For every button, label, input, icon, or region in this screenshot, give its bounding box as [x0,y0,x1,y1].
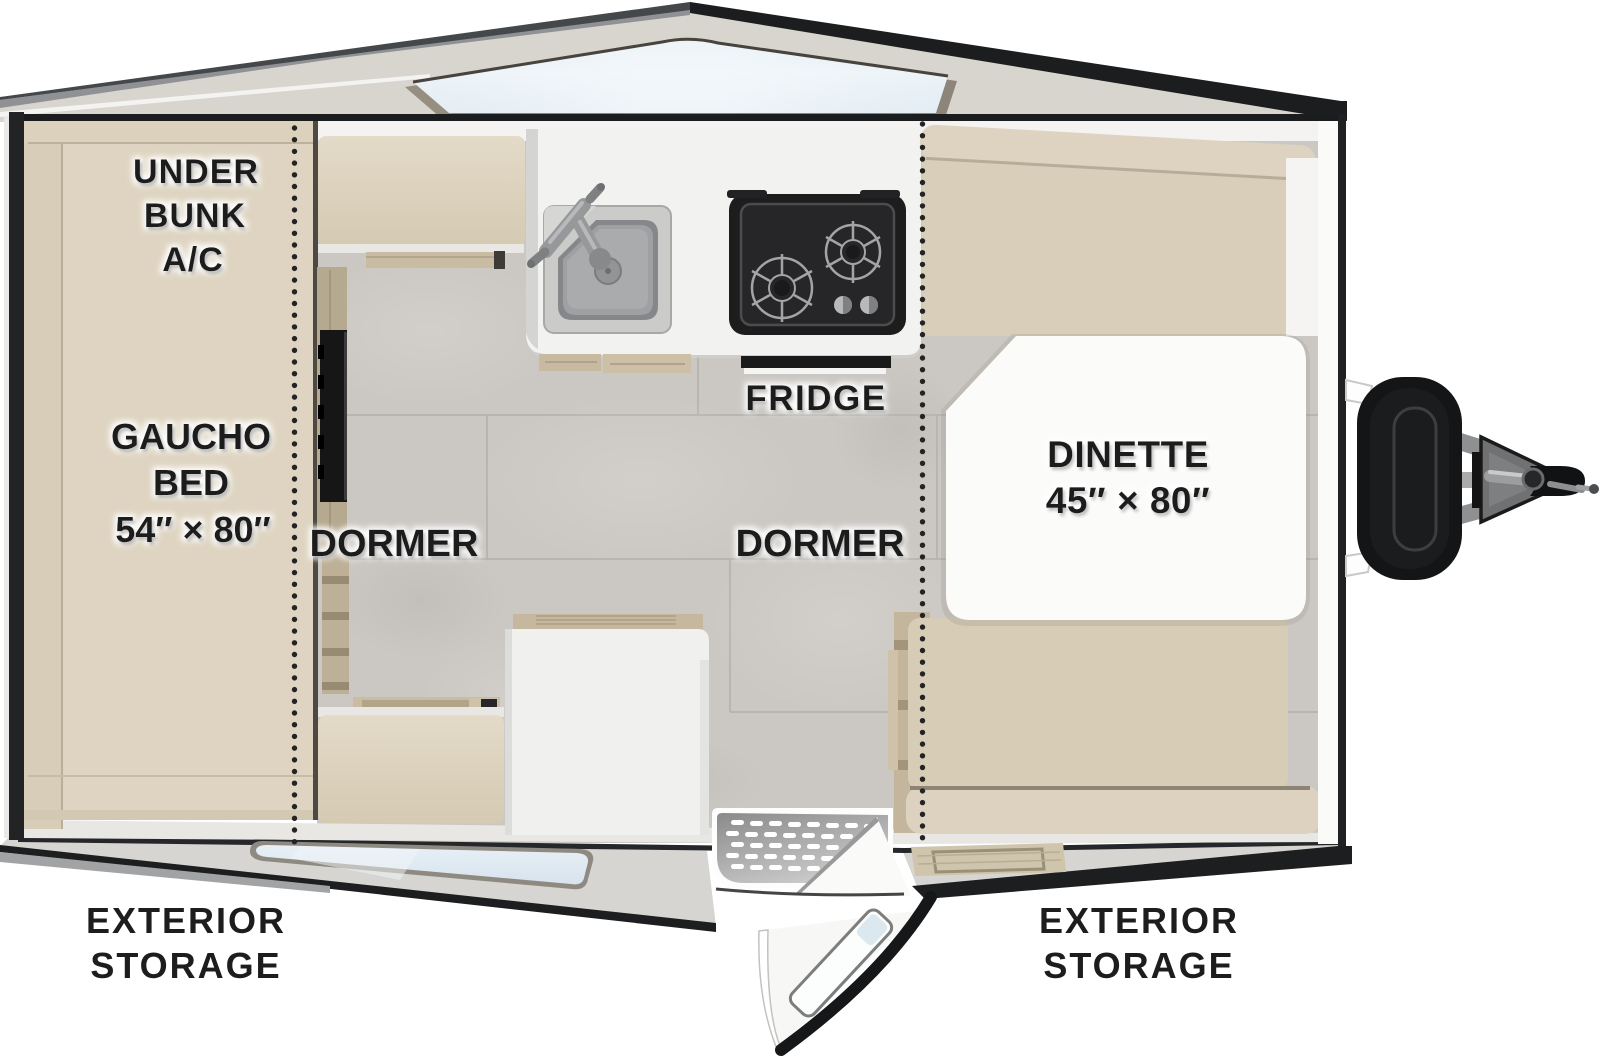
svg-text:STORAGE: STORAGE [90,945,281,986]
svg-text:A/C: A/C [162,241,224,279]
svg-text:45″ × 80″: 45″ × 80″ [1046,480,1210,521]
svg-text:GAUCHO: GAUCHO [111,416,271,457]
svg-text:BUNK: BUNK [144,197,246,235]
svg-text:DINETTE: DINETTE [1047,434,1209,475]
svg-text:DORMER: DORMER [310,523,479,565]
svg-text:UNDER: UNDER [133,153,259,191]
svg-text:DORMER: DORMER [736,523,905,565]
svg-text:54″ × 80″: 54″ × 80″ [115,509,271,550]
svg-text:BED: BED [153,462,229,503]
svg-text:FRIDGE: FRIDGE [745,379,886,418]
svg-text:EXTERIOR: EXTERIOR [1039,900,1239,941]
svg-text:STORAGE: STORAGE [1043,945,1234,986]
svg-text:EXTERIOR: EXTERIOR [86,900,286,941]
